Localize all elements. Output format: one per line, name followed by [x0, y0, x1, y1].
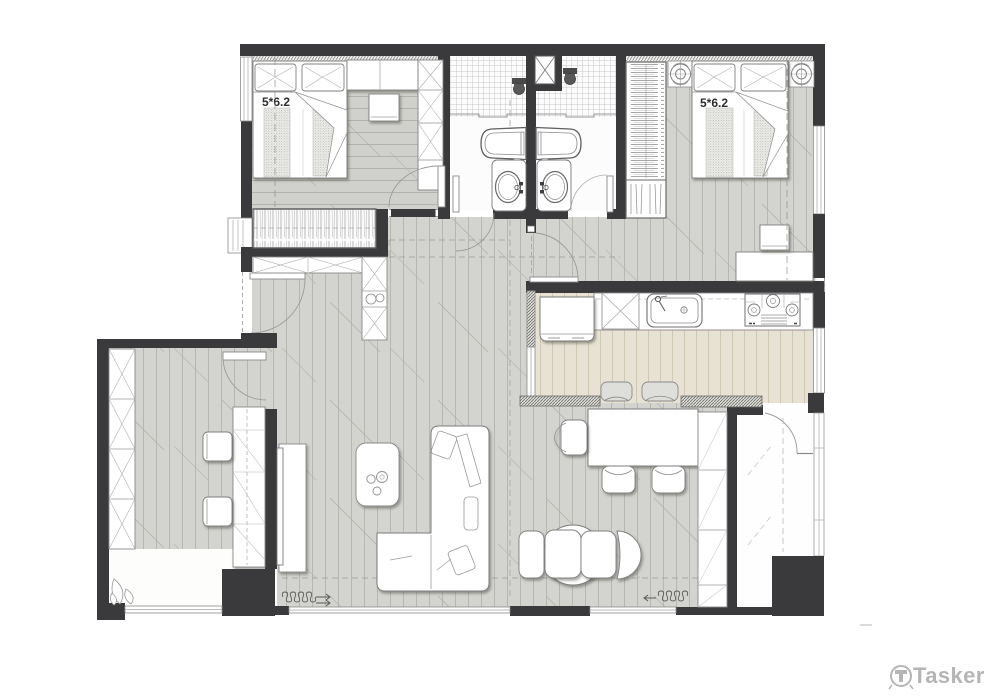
svg-text:5*6.2: 5*6.2	[262, 95, 290, 109]
svg-text:Tasker: Tasker	[913, 663, 985, 688]
svg-text:5*6.2: 5*6.2	[700, 96, 728, 110]
